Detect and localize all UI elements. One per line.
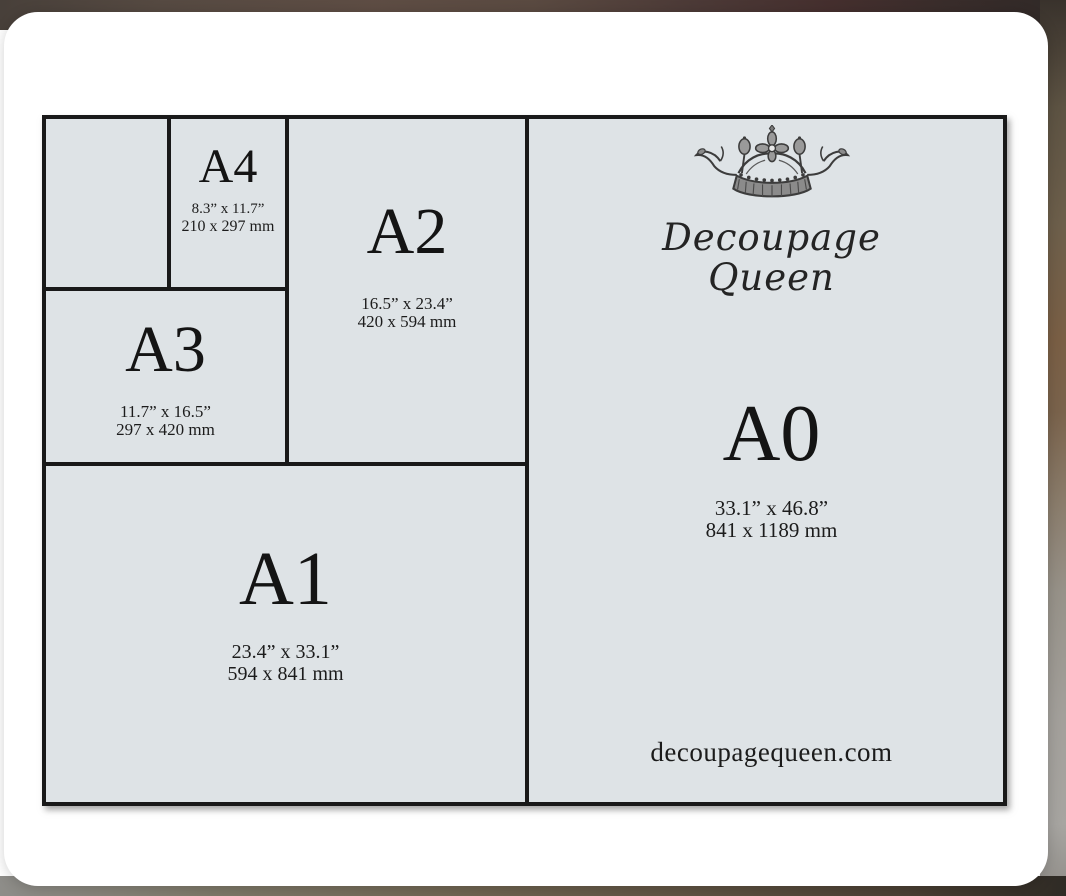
size-box-a2: A2 16.5” x 23.4” 420 x 594 mm <box>289 197 525 331</box>
crown-icon <box>684 198 860 215</box>
size-label-a2: A2 <box>289 197 525 267</box>
brand-logo: Decoupage Queen <box>540 125 1003 298</box>
size-label-a0: A0 <box>540 392 1003 476</box>
size-mm-a2: 420 x 594 mm <box>289 313 525 331</box>
size-mm-a1: 594 x 841 mm <box>46 663 525 685</box>
divider-toprow-a3 <box>46 287 285 291</box>
brand-name-line1: Decoupage <box>540 218 1003 258</box>
product-image-card: A4 8.3” x 11.7” 210 x 297 mm A3 11.7” x … <box>4 12 1048 886</box>
size-inches-a0: 33.1” x 46.8” <box>540 497 1003 519</box>
size-mm-a4: 210 x 297 mm <box>171 218 285 236</box>
size-label-a4: A4 <box>171 141 285 193</box>
size-inches-a1: 23.4” x 33.1” <box>46 641 525 663</box>
size-inches-a3: 11.7” x 16.5” <box>46 403 285 421</box>
size-box-a3: A3 11.7” x 16.5” 297 x 420 mm <box>46 315 285 439</box>
size-inches-a4: 8.3” x 11.7” <box>171 201 285 218</box>
size-inches-a2: 16.5” x 23.4” <box>289 295 525 313</box>
size-box-a1: A1 23.4” x 33.1” 594 x 841 mm <box>46 539 525 685</box>
brand-name-line2: Queen <box>540 258 1003 298</box>
size-label-a1: A1 <box>46 539 525 619</box>
website-url: decoupagequeen.com <box>540 735 1003 769</box>
size-box-a0: A0 33.1” x 46.8” 841 x 1189 mm <box>540 392 1003 541</box>
divider-a1-a0 <box>525 119 529 802</box>
size-mm-a3: 297 x 420 mm <box>46 421 285 439</box>
size-mm-a0: 841 x 1189 mm <box>540 519 1003 541</box>
divider-a3a2-a1 <box>46 462 525 466</box>
size-box-a4: A4 8.3” x 11.7” 210 x 297 mm <box>171 141 285 236</box>
size-label-a3: A3 <box>46 315 285 385</box>
paper-size-diagram: A4 8.3” x 11.7” 210 x 297 mm A3 11.7” x … <box>42 115 1007 806</box>
